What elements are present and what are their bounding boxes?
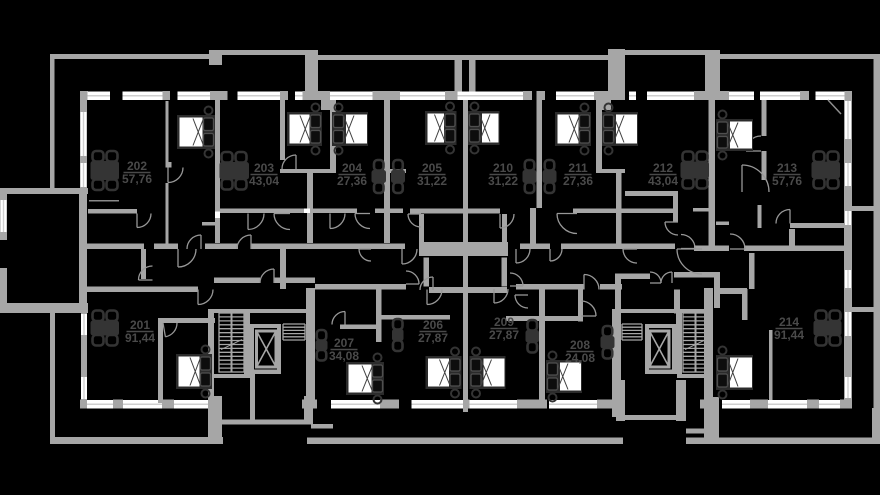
svg-text:91,44: 91,44 [774,328,804,342]
svg-text:24,08: 24,08 [565,351,595,365]
svg-text:209: 209 [494,315,514,329]
svg-text:202: 202 [127,159,147,173]
svg-text:57,76: 57,76 [772,174,802,188]
svg-text:207: 207 [334,336,354,350]
svg-text:91,44: 91,44 [125,331,155,345]
svg-text:206: 206 [423,318,443,332]
svg-text:31,22: 31,22 [488,174,518,188]
svg-text:27,36: 27,36 [563,174,593,188]
svg-text:204: 204 [342,161,362,175]
svg-text:205: 205 [422,161,442,175]
svg-text:211: 211 [568,161,588,175]
svg-text:201: 201 [130,318,150,332]
svg-text:43,04: 43,04 [648,174,678,188]
svg-text:34,08: 34,08 [329,349,359,363]
svg-text:214: 214 [779,315,799,329]
svg-text:210: 210 [493,161,513,175]
svg-text:57,76: 57,76 [122,172,152,186]
svg-text:31,22: 31,22 [417,174,447,188]
svg-text:27,87: 27,87 [489,328,519,342]
svg-text:27,36: 27,36 [337,174,367,188]
svg-text:27,87: 27,87 [418,331,448,345]
svg-text:213: 213 [777,161,797,175]
svg-text:208: 208 [570,338,590,352]
svg-text:43,04: 43,04 [249,174,279,188]
svg-text:212: 212 [653,161,673,175]
svg-text:203: 203 [254,161,274,175]
